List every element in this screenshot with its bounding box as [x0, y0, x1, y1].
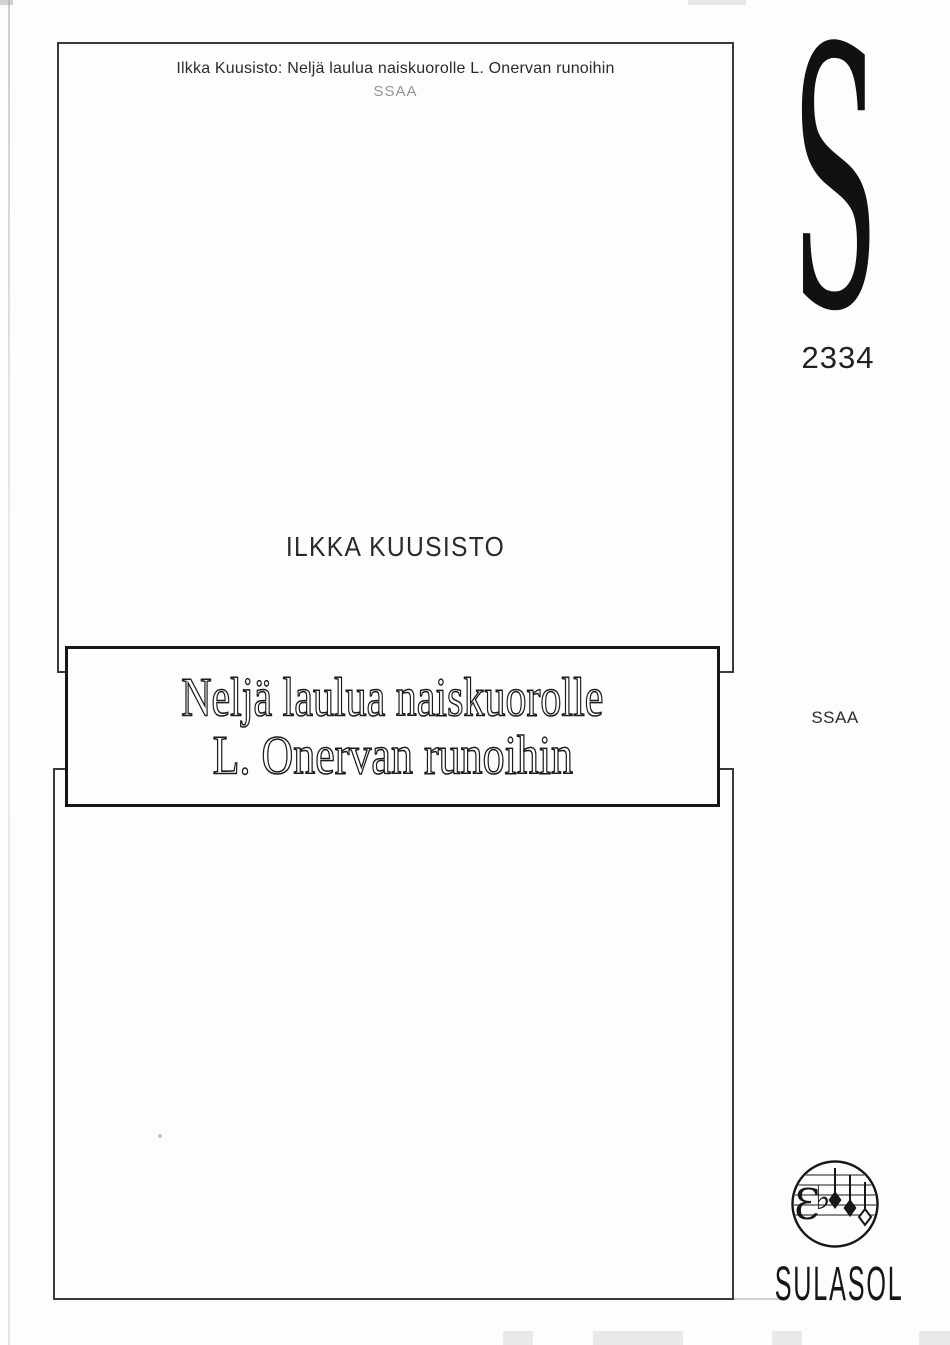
flat-glyph: ♭ [815, 1178, 831, 1217]
scan-artifact-block [919, 1331, 950, 1345]
work-title-box: Neljä laulua naiskuorolle L. Onervan run… [65, 646, 720, 807]
header-work-title: Ilkka Kuusisto: Neljä laulua naiskuoroll… [57, 60, 734, 78]
scan-artifact-block [503, 1331, 533, 1345]
page-left-edge-artifact [8, 0, 10, 1345]
publisher-name: SULASOL [775, 1257, 896, 1312]
work-title-line1: Neljä laulua naiskuorolle [181, 667, 603, 728]
scan-line-artifact [733, 1298, 778, 1300]
upper-frame [57, 42, 734, 673]
voicing-label: SSAA [770, 708, 900, 728]
scan-speck-top-left [0, 0, 13, 5]
header-voicing-label: SSAA [57, 83, 734, 100]
series-letter-glyph: S [791, 0, 879, 390]
work-title-line2: L. Onervan runoihin [212, 725, 572, 786]
lower-frame [53, 768, 734, 1300]
note-head-filled [844, 1199, 857, 1217]
catalog-number: 2334 [770, 340, 906, 376]
sulasol-logo-icon: Ɛ ♭ [789, 1158, 881, 1250]
note-head-open [859, 1209, 871, 1225]
score-cover-page: Ilkka Kuusisto: Neljä laulua naiskuoroll… [0, 0, 950, 1345]
scan-smudge-top [688, 0, 746, 5]
scan-artifact-block [593, 1331, 683, 1345]
series-letter-icon: S [790, 42, 880, 314]
scan-artifact-block [772, 1331, 802, 1345]
composer-name: ILKKA KUUSISTO [98, 531, 694, 563]
